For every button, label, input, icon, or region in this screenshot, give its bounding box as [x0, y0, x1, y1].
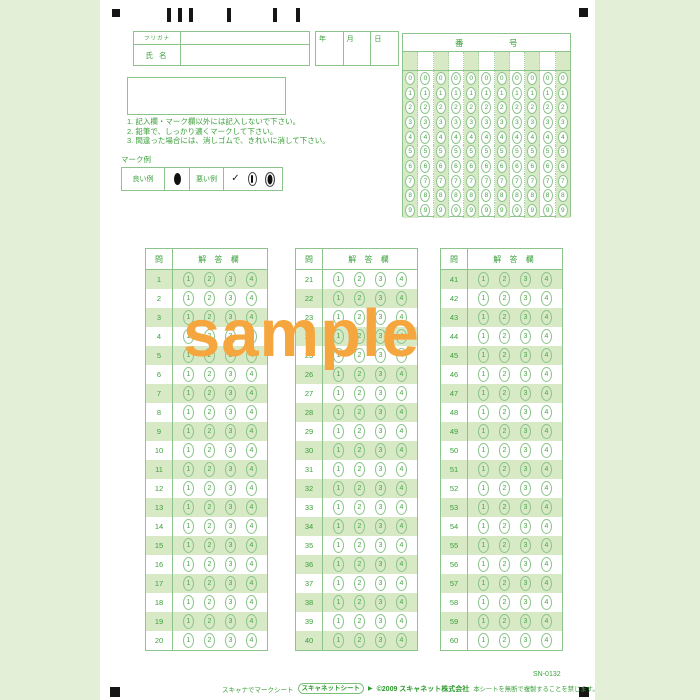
number-bubble-4[interactable]: 4 [512, 131, 522, 144]
answer-bubble-32-2[interactable]: 2 [354, 481, 365, 496]
answer-bubble-52-3[interactable]: 3 [520, 481, 531, 496]
answer-bubble-56-4[interactable]: 4 [541, 557, 552, 572]
number-bubble-9[interactable]: 9 [405, 204, 415, 217]
answer-bubble-31-4[interactable]: 4 [396, 462, 407, 477]
number-bubble-5[interactable]: 5 [436, 145, 446, 158]
answer-bubble-21-2[interactable]: 2 [354, 272, 365, 287]
number-bubble-6[interactable]: 6 [527, 160, 537, 173]
answer-bubble-49-3[interactable]: 3 [520, 424, 531, 439]
answer-bubble-53-4[interactable]: 4 [541, 500, 552, 515]
answer-bubble-11-1[interactable]: 1 [183, 462, 194, 477]
answer-bubble-42-4[interactable]: 4 [541, 291, 552, 306]
number-write-cell[interactable] [495, 52, 510, 70]
answer-bubble-55-2[interactable]: 2 [499, 538, 510, 553]
answer-bubble-57-3[interactable]: 3 [520, 576, 531, 591]
answer-bubble-13-2[interactable]: 2 [204, 500, 215, 515]
answer-bubble-18-4[interactable]: 4 [246, 595, 257, 610]
answer-bubble-54-4[interactable]: 4 [541, 519, 552, 534]
answer-bubble-46-4[interactable]: 4 [541, 367, 552, 382]
number-bubble-9[interactable]: 9 [481, 204, 491, 217]
number-bubble-9[interactable]: 9 [543, 204, 553, 217]
answer-bubble-58-3[interactable]: 3 [520, 595, 531, 610]
answer-bubble-17-2[interactable]: 2 [204, 576, 215, 591]
year-cell[interactable]: 年 [316, 32, 343, 65]
answer-bubble-8-1[interactable]: 1 [183, 405, 194, 420]
number-bubble-7[interactable]: 7 [543, 175, 553, 188]
answer-bubble-8-3[interactable]: 3 [225, 405, 236, 420]
answer-bubble-35-1[interactable]: 1 [333, 538, 344, 553]
answer-bubble-7-3[interactable]: 3 [225, 386, 236, 401]
answer-bubble-55-3[interactable]: 3 [520, 538, 531, 553]
number-bubble-4[interactable]: 4 [420, 131, 430, 144]
number-bubble-1[interactable]: 1 [512, 87, 522, 100]
answer-bubble-36-4[interactable]: 4 [396, 557, 407, 572]
answer-bubble-16-2[interactable]: 2 [204, 557, 215, 572]
answer-bubble-17-1[interactable]: 1 [183, 576, 194, 591]
answer-bubble-50-2[interactable]: 2 [499, 443, 510, 458]
number-bubble-5[interactable]: 5 [451, 145, 461, 158]
answer-bubble-49-1[interactable]: 1 [478, 424, 489, 439]
number-write-cell[interactable] [403, 52, 418, 70]
number-bubble-1[interactable]: 1 [420, 87, 430, 100]
answer-bubble-15-2[interactable]: 2 [204, 538, 215, 553]
answer-bubble-10-4[interactable]: 4 [246, 443, 257, 458]
answer-bubble-53-3[interactable]: 3 [520, 500, 531, 515]
answer-bubble-41-3[interactable]: 3 [520, 272, 531, 287]
number-bubble-3[interactable]: 3 [497, 116, 507, 129]
number-bubble-4[interactable]: 4 [558, 131, 568, 144]
number-bubble-4[interactable]: 4 [405, 131, 415, 144]
answer-bubble-44-3[interactable]: 3 [520, 329, 531, 344]
answer-bubble-27-1[interactable]: 1 [333, 386, 344, 401]
number-bubble-7[interactable]: 7 [527, 175, 537, 188]
number-write-cell[interactable] [418, 52, 433, 70]
number-bubble-4[interactable]: 4 [436, 131, 446, 144]
answer-bubble-33-3[interactable]: 3 [375, 500, 386, 515]
answer-bubble-45-3[interactable]: 3 [520, 348, 531, 363]
answer-bubble-27-2[interactable]: 2 [354, 386, 365, 401]
number-bubble-2[interactable]: 2 [527, 101, 537, 114]
answer-bubble-41-2[interactable]: 2 [499, 272, 510, 287]
answer-bubble-38-2[interactable]: 2 [354, 595, 365, 610]
answer-bubble-12-2[interactable]: 2 [204, 481, 215, 496]
answer-bubble-43-4[interactable]: 4 [541, 310, 552, 325]
answer-bubble-7-1[interactable]: 1 [183, 386, 194, 401]
number-write-cell[interactable] [556, 52, 570, 70]
number-bubble-3[interactable]: 3 [420, 116, 430, 129]
number-bubble-8[interactable]: 8 [451, 189, 461, 202]
number-bubble-3[interactable]: 3 [558, 116, 568, 129]
answer-bubble-28-2[interactable]: 2 [354, 405, 365, 420]
answer-bubble-30-3[interactable]: 3 [375, 443, 386, 458]
number-bubble-2[interactable]: 2 [466, 101, 476, 114]
number-bubble-1[interactable]: 1 [527, 87, 537, 100]
answer-bubble-13-4[interactable]: 4 [246, 500, 257, 515]
number-write-cell[interactable] [510, 52, 525, 70]
answer-bubble-9-4[interactable]: 4 [246, 424, 257, 439]
answer-bubble-10-2[interactable]: 2 [204, 443, 215, 458]
answer-bubble-20-3[interactable]: 3 [225, 633, 236, 648]
answer-bubble-39-3[interactable]: 3 [375, 614, 386, 629]
answer-bubble-36-2[interactable]: 2 [354, 557, 365, 572]
number-bubble-2[interactable]: 2 [481, 101, 491, 114]
answer-bubble-10-3[interactable]: 3 [225, 443, 236, 458]
number-bubble-9[interactable]: 9 [497, 204, 507, 217]
number-bubble-8[interactable]: 8 [436, 189, 446, 202]
answer-bubble-41-4[interactable]: 4 [541, 272, 552, 287]
answer-bubble-32-3[interactable]: 3 [375, 481, 386, 496]
answer-bubble-16-1[interactable]: 1 [183, 557, 194, 572]
number-bubble-1[interactable]: 1 [466, 87, 476, 100]
answer-bubble-50-1[interactable]: 1 [478, 443, 489, 458]
answer-bubble-19-1[interactable]: 1 [183, 614, 194, 629]
number-bubble-6[interactable]: 6 [512, 160, 522, 173]
number-bubble-2[interactable]: 2 [436, 101, 446, 114]
answer-bubble-10-1[interactable]: 1 [183, 443, 194, 458]
number-bubble-3[interactable]: 3 [405, 116, 415, 129]
answer-bubble-40-3[interactable]: 3 [375, 633, 386, 648]
answer-bubble-56-3[interactable]: 3 [520, 557, 531, 572]
answer-bubble-35-2[interactable]: 2 [354, 538, 365, 553]
answer-bubble-40-4[interactable]: 4 [396, 633, 407, 648]
number-bubble-3[interactable]: 3 [436, 116, 446, 129]
answer-bubble-45-4[interactable]: 4 [541, 348, 552, 363]
answer-bubble-50-4[interactable]: 4 [541, 443, 552, 458]
number-bubble-1[interactable]: 1 [543, 87, 553, 100]
number-bubble-6[interactable]: 6 [481, 160, 491, 173]
answer-bubble-8-4[interactable]: 4 [246, 405, 257, 420]
answer-bubble-35-4[interactable]: 4 [396, 538, 407, 553]
number-bubble-5[interactable]: 5 [466, 145, 476, 158]
answer-bubble-29-2[interactable]: 2 [354, 424, 365, 439]
answer-bubble-38-4[interactable]: 4 [396, 595, 407, 610]
furigana-input-area[interactable] [181, 32, 309, 44]
answer-bubble-1-3[interactable]: 3 [225, 272, 236, 287]
answer-bubble-40-2[interactable]: 2 [354, 633, 365, 648]
answer-bubble-19-3[interactable]: 3 [225, 614, 236, 629]
number-bubble-2[interactable]: 2 [497, 101, 507, 114]
number-bubble-7[interactable]: 7 [436, 175, 446, 188]
number-bubble-0[interactable]: 0 [558, 72, 568, 85]
number-bubble-5[interactable]: 5 [420, 145, 430, 158]
answer-bubble-29-1[interactable]: 1 [333, 424, 344, 439]
number-write-cell[interactable] [540, 52, 555, 70]
answer-bubble-34-2[interactable]: 2 [354, 519, 365, 534]
number-bubble-0[interactable]: 0 [497, 72, 507, 85]
number-bubble-1[interactable]: 1 [436, 87, 446, 100]
answer-bubble-37-1[interactable]: 1 [333, 576, 344, 591]
number-write-cell[interactable] [434, 52, 449, 70]
answer-bubble-52-1[interactable]: 1 [478, 481, 489, 496]
answer-bubble-32-4[interactable]: 4 [396, 481, 407, 496]
answer-bubble-9-2[interactable]: 2 [204, 424, 215, 439]
number-bubble-4[interactable]: 4 [451, 131, 461, 144]
number-bubble-4[interactable]: 4 [466, 131, 476, 144]
number-bubble-4[interactable]: 4 [543, 131, 553, 144]
answer-bubble-15-3[interactable]: 3 [225, 538, 236, 553]
answer-bubble-14-3[interactable]: 3 [225, 519, 236, 534]
answer-bubble-44-4[interactable]: 4 [541, 329, 552, 344]
answer-bubble-18-3[interactable]: 3 [225, 595, 236, 610]
answer-bubble-45-1[interactable]: 1 [478, 348, 489, 363]
answer-bubble-59-4[interactable]: 4 [541, 614, 552, 629]
answer-bubble-42-1[interactable]: 1 [478, 291, 489, 306]
answer-bubble-30-1[interactable]: 1 [333, 443, 344, 458]
answer-bubble-19-2[interactable]: 2 [204, 614, 215, 629]
answer-bubble-7-4[interactable]: 4 [246, 386, 257, 401]
number-bubble-8[interactable]: 8 [558, 189, 568, 202]
month-cell[interactable]: 月 [343, 32, 371, 65]
number-bubble-4[interactable]: 4 [481, 131, 491, 144]
answer-bubble-34-4[interactable]: 4 [396, 519, 407, 534]
number-bubble-4[interactable]: 4 [497, 131, 507, 144]
answer-bubble-39-2[interactable]: 2 [354, 614, 365, 629]
answer-bubble-14-4[interactable]: 4 [246, 519, 257, 534]
number-bubble-3[interactable]: 3 [527, 116, 537, 129]
answer-bubble-60-3[interactable]: 3 [520, 633, 531, 648]
number-write-cell[interactable] [479, 52, 494, 70]
number-bubble-5[interactable]: 5 [527, 145, 537, 158]
number-write-cell[interactable] [449, 52, 464, 70]
answer-bubble-27-3[interactable]: 3 [375, 386, 386, 401]
answer-bubble-11-2[interactable]: 2 [204, 462, 215, 477]
number-bubble-9[interactable]: 9 [420, 204, 430, 217]
answer-bubble-45-2[interactable]: 2 [499, 348, 510, 363]
answer-bubble-14-2[interactable]: 2 [204, 519, 215, 534]
number-bubble-2[interactable]: 2 [543, 101, 553, 114]
answer-bubble-37-4[interactable]: 4 [396, 576, 407, 591]
answer-bubble-58-2[interactable]: 2 [499, 595, 510, 610]
number-bubble-1[interactable]: 1 [405, 87, 415, 100]
answer-bubble-48-2[interactable]: 2 [499, 405, 510, 420]
number-bubble-8[interactable]: 8 [481, 189, 491, 202]
answer-bubble-42-2[interactable]: 2 [499, 291, 510, 306]
answer-bubble-54-2[interactable]: 2 [499, 519, 510, 534]
answer-bubble-53-1[interactable]: 1 [478, 500, 489, 515]
answer-bubble-36-1[interactable]: 1 [333, 557, 344, 572]
number-bubble-4[interactable]: 4 [527, 131, 537, 144]
number-bubble-7[interactable]: 7 [481, 175, 491, 188]
number-bubble-3[interactable]: 3 [466, 116, 476, 129]
number-bubble-0[interactable]: 0 [543, 72, 553, 85]
number-bubble-8[interactable]: 8 [420, 189, 430, 202]
answer-bubble-38-3[interactable]: 3 [375, 595, 386, 610]
number-bubble-7[interactable]: 7 [466, 175, 476, 188]
answer-bubble-27-4[interactable]: 4 [396, 386, 407, 401]
answer-bubble-47-1[interactable]: 1 [478, 386, 489, 401]
answer-bubble-15-4[interactable]: 4 [246, 538, 257, 553]
answer-bubble-59-2[interactable]: 2 [499, 614, 510, 629]
answer-bubble-37-2[interactable]: 2 [354, 576, 365, 591]
answer-bubble-19-4[interactable]: 4 [246, 614, 257, 629]
number-bubble-0[interactable]: 0 [451, 72, 461, 85]
number-bubble-2[interactable]: 2 [405, 101, 415, 114]
number-bubble-2[interactable]: 2 [558, 101, 568, 114]
number-bubble-6[interactable]: 6 [436, 160, 446, 173]
answer-bubble-49-4[interactable]: 4 [541, 424, 552, 439]
answer-bubble-36-3[interactable]: 3 [375, 557, 386, 572]
number-bubble-8[interactable]: 8 [466, 189, 476, 202]
answer-bubble-44-2[interactable]: 2 [499, 329, 510, 344]
answer-bubble-20-4[interactable]: 4 [246, 633, 257, 648]
answer-bubble-58-1[interactable]: 1 [478, 595, 489, 610]
number-bubble-7[interactable]: 7 [512, 175, 522, 188]
answer-bubble-1-2[interactable]: 2 [204, 272, 215, 287]
answer-bubble-20-2[interactable]: 2 [204, 633, 215, 648]
number-bubble-5[interactable]: 5 [543, 145, 553, 158]
number-bubble-3[interactable]: 3 [481, 116, 491, 129]
answer-bubble-60-2[interactable]: 2 [499, 633, 510, 648]
answer-bubble-54-3[interactable]: 3 [520, 519, 531, 534]
answer-bubble-13-1[interactable]: 1 [183, 500, 194, 515]
answer-bubble-37-3[interactable]: 3 [375, 576, 386, 591]
number-bubble-7[interactable]: 7 [451, 175, 461, 188]
number-bubble-6[interactable]: 6 [543, 160, 553, 173]
answer-bubble-51-3[interactable]: 3 [520, 462, 531, 477]
answer-bubble-41-1[interactable]: 1 [478, 272, 489, 287]
answer-bubble-43-3[interactable]: 3 [520, 310, 531, 325]
number-bubble-1[interactable]: 1 [497, 87, 507, 100]
answer-bubble-29-3[interactable]: 3 [375, 424, 386, 439]
answer-bubble-50-3[interactable]: 3 [520, 443, 531, 458]
answer-bubble-12-4[interactable]: 4 [246, 481, 257, 496]
answer-bubble-43-1[interactable]: 1 [478, 310, 489, 325]
number-bubble-2[interactable]: 2 [512, 101, 522, 114]
answer-bubble-13-3[interactable]: 3 [225, 500, 236, 515]
answer-bubble-57-1[interactable]: 1 [478, 576, 489, 591]
number-bubble-7[interactable]: 7 [405, 175, 415, 188]
number-bubble-9[interactable]: 9 [436, 204, 446, 217]
day-cell[interactable]: 日 [370, 32, 398, 65]
answer-bubble-21-1[interactable]: 1 [333, 272, 344, 287]
answer-bubble-34-1[interactable]: 1 [333, 519, 344, 534]
number-bubble-6[interactable]: 6 [405, 160, 415, 173]
answer-bubble-54-1[interactable]: 1 [478, 519, 489, 534]
answer-bubble-28-3[interactable]: 3 [375, 405, 386, 420]
note-box[interactable] [127, 77, 286, 115]
answer-bubble-32-1[interactable]: 1 [333, 481, 344, 496]
answer-bubble-29-4[interactable]: 4 [396, 424, 407, 439]
number-bubble-6[interactable]: 6 [466, 160, 476, 173]
answer-bubble-51-2[interactable]: 2 [499, 462, 510, 477]
answer-bubble-51-1[interactable]: 1 [478, 462, 489, 477]
answer-bubble-30-4[interactable]: 4 [396, 443, 407, 458]
number-bubble-8[interactable]: 8 [405, 189, 415, 202]
answer-bubble-52-2[interactable]: 2 [499, 481, 510, 496]
answer-bubble-39-1[interactable]: 1 [333, 614, 344, 629]
answer-bubble-38-1[interactable]: 1 [333, 595, 344, 610]
answer-bubble-46-2[interactable]: 2 [499, 367, 510, 382]
answer-bubble-31-1[interactable]: 1 [333, 462, 344, 477]
number-bubble-8[interactable]: 8 [527, 189, 537, 202]
answer-bubble-39-4[interactable]: 4 [396, 614, 407, 629]
answer-bubble-17-4[interactable]: 4 [246, 576, 257, 591]
answer-bubble-51-4[interactable]: 4 [541, 462, 552, 477]
number-bubble-9[interactable]: 9 [512, 204, 522, 217]
number-bubble-5[interactable]: 5 [481, 145, 491, 158]
name-input-area[interactable] [181, 45, 309, 65]
number-bubble-5[interactable]: 5 [405, 145, 415, 158]
answer-bubble-34-3[interactable]: 3 [375, 519, 386, 534]
number-bubble-6[interactable]: 6 [451, 160, 461, 173]
number-bubble-0[interactable]: 0 [512, 72, 522, 85]
number-bubble-0[interactable]: 0 [466, 72, 476, 85]
number-bubble-0[interactable]: 0 [436, 72, 446, 85]
answer-bubble-31-2[interactable]: 2 [354, 462, 365, 477]
number-bubble-7[interactable]: 7 [420, 175, 430, 188]
answer-bubble-9-1[interactable]: 1 [183, 424, 194, 439]
answer-bubble-46-1[interactable]: 1 [478, 367, 489, 382]
number-bubble-5[interactable]: 5 [512, 145, 522, 158]
number-bubble-0[interactable]: 0 [481, 72, 491, 85]
answer-bubble-28-1[interactable]: 1 [333, 405, 344, 420]
number-write-cell[interactable] [464, 52, 479, 70]
answer-bubble-11-4[interactable]: 4 [246, 462, 257, 477]
answer-bubble-47-3[interactable]: 3 [520, 386, 531, 401]
answer-bubble-48-4[interactable]: 4 [541, 405, 552, 420]
answer-bubble-33-4[interactable]: 4 [396, 500, 407, 515]
number-bubble-9[interactable]: 9 [527, 204, 537, 217]
answer-bubble-7-2[interactable]: 2 [204, 386, 215, 401]
answer-bubble-48-1[interactable]: 1 [478, 405, 489, 420]
answer-bubble-21-3[interactable]: 3 [375, 272, 386, 287]
answer-bubble-20-1[interactable]: 1 [183, 633, 194, 648]
answer-bubble-49-2[interactable]: 2 [499, 424, 510, 439]
answer-bubble-35-3[interactable]: 3 [375, 538, 386, 553]
answer-bubble-9-3[interactable]: 3 [225, 424, 236, 439]
answer-bubble-57-2[interactable]: 2 [499, 576, 510, 591]
answer-bubble-43-2[interactable]: 2 [499, 310, 510, 325]
number-bubble-2[interactable]: 2 [420, 101, 430, 114]
number-bubble-7[interactable]: 7 [558, 175, 568, 188]
answer-bubble-8-2[interactable]: 2 [204, 405, 215, 420]
answer-bubble-31-3[interactable]: 3 [375, 462, 386, 477]
answer-bubble-59-1[interactable]: 1 [478, 614, 489, 629]
answer-bubble-57-4[interactable]: 4 [541, 576, 552, 591]
number-bubble-7[interactable]: 7 [497, 175, 507, 188]
number-bubble-5[interactable]: 5 [497, 145, 507, 158]
number-bubble-0[interactable]: 0 [405, 72, 415, 85]
number-bubble-9[interactable]: 9 [558, 204, 568, 217]
answer-bubble-18-2[interactable]: 2 [204, 595, 215, 610]
number-bubble-6[interactable]: 6 [558, 160, 568, 173]
number-bubble-9[interactable]: 9 [451, 204, 461, 217]
answer-bubble-55-4[interactable]: 4 [541, 538, 552, 553]
answer-bubble-58-4[interactable]: 4 [541, 595, 552, 610]
answer-bubble-47-4[interactable]: 4 [541, 386, 552, 401]
answer-bubble-15-1[interactable]: 1 [183, 538, 194, 553]
answer-bubble-14-1[interactable]: 1 [183, 519, 194, 534]
answer-bubble-44-1[interactable]: 1 [478, 329, 489, 344]
number-bubble-9[interactable]: 9 [466, 204, 476, 217]
answer-bubble-18-1[interactable]: 1 [183, 595, 194, 610]
answer-bubble-40-1[interactable]: 1 [333, 633, 344, 648]
number-bubble-2[interactable]: 2 [451, 101, 461, 114]
answer-bubble-47-2[interactable]: 2 [499, 386, 510, 401]
number-bubble-3[interactable]: 3 [451, 116, 461, 129]
number-bubble-8[interactable]: 8 [497, 189, 507, 202]
number-bubble-5[interactable]: 5 [558, 145, 568, 158]
answer-bubble-28-4[interactable]: 4 [396, 405, 407, 420]
answer-bubble-33-2[interactable]: 2 [354, 500, 365, 515]
number-bubble-8[interactable]: 8 [512, 189, 522, 202]
answer-bubble-42-3[interactable]: 3 [520, 291, 531, 306]
answer-bubble-33-1[interactable]: 1 [333, 500, 344, 515]
number-bubble-3[interactable]: 3 [512, 116, 522, 129]
number-bubble-6[interactable]: 6 [497, 160, 507, 173]
answer-bubble-52-4[interactable]: 4 [541, 481, 552, 496]
number-bubble-1[interactable]: 1 [451, 87, 461, 100]
